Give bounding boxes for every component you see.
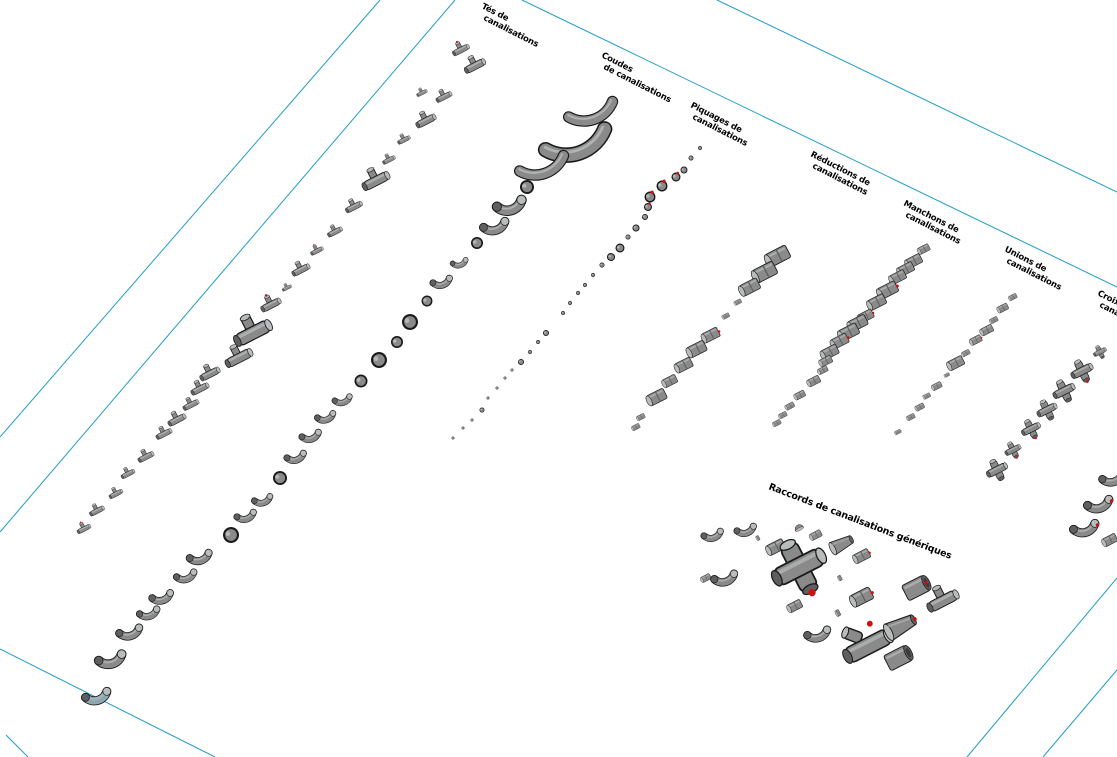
canvas-background — [0, 0, 1117, 757]
viewport-3d-canvas[interactable]: Tés decanalisationsCoudesde canalisation… — [0, 0, 1117, 757]
sheet-3d-scene: Tés decanalisationsCoudesde canalisation… — [0, 0, 1117, 757]
